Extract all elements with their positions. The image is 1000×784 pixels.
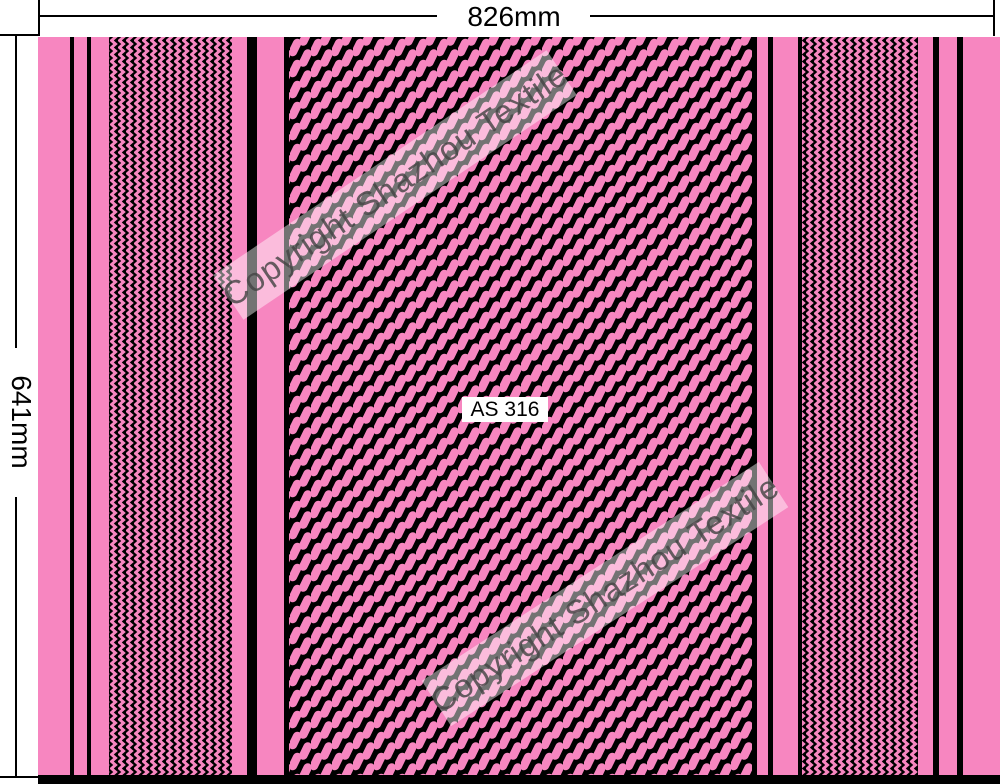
width-dim-line-left (39, 15, 437, 17)
fabric-stripe-black (957, 37, 963, 784)
height-dimension-label: 641mm (7, 375, 35, 468)
fabric-stripe-pink (939, 37, 957, 784)
width-dimension-label: 826mm (467, 3, 560, 31)
fabric-stripe-pink (773, 37, 798, 784)
height-dim-line-bottom (15, 497, 17, 778)
width-dim-tick-left (38, 0, 40, 36)
fabric-stripe-pink (963, 37, 1000, 784)
fabric-stripe-black (87, 37, 91, 784)
fabric-stripe-pink (74, 37, 87, 784)
fabric-stripe-zz (109, 37, 232, 784)
fabric-stripe-black (768, 37, 773, 784)
fabric-stripe-pink (257, 37, 284, 784)
fabric-stripe-black (247, 37, 257, 784)
height-dim-line-top (15, 36, 17, 348)
fabric-bottom-bar (38, 775, 1000, 784)
fabric-stripe-pink (757, 37, 768, 784)
width-dim-line-right (590, 15, 995, 17)
fabric-stripe-black (752, 37, 757, 784)
textile-design-sheet: 826mm 641mm Copyright Shazhou Textile Co… (0, 0, 1000, 784)
fabric-stripe-black (798, 37, 802, 784)
fabric-stripe-pink (232, 37, 247, 784)
fabric-stripe-black (933, 37, 939, 784)
fabric-stripe-zz (802, 37, 918, 784)
fabric-stripe-pink (91, 37, 109, 784)
fabric-stripe-pink (38, 37, 70, 784)
height-dim-tick-top (0, 34, 39, 36)
fabric-stripe-pink (918, 37, 933, 784)
product-code-label: AS 316 (462, 397, 548, 422)
fabric-stripe-black (284, 37, 289, 784)
width-dim-tick-right (993, 0, 995, 36)
fabric-stripe-black (70, 37, 74, 784)
height-dim-tick-bottom (0, 776, 39, 778)
